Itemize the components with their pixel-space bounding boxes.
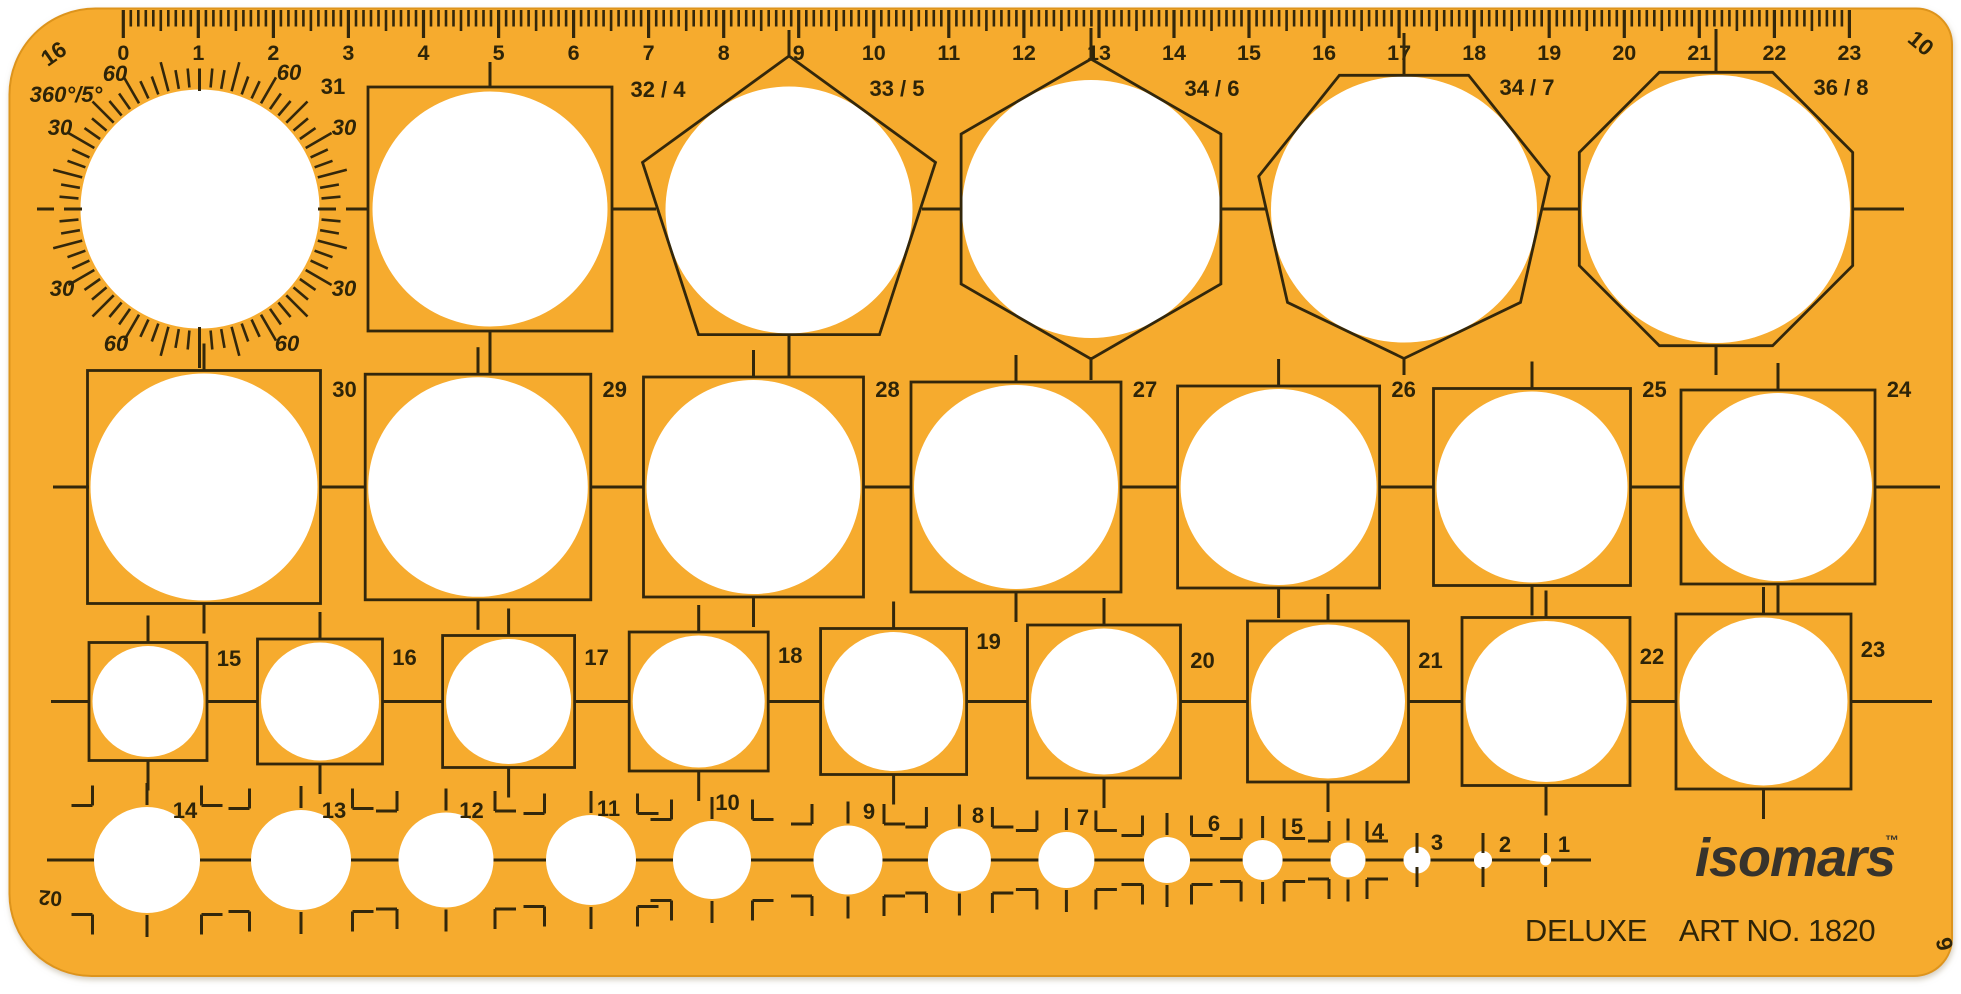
svg-text:60: 60 (275, 331, 300, 356)
svg-text:31: 31 (321, 74, 345, 99)
svg-text:1: 1 (192, 41, 204, 65)
svg-text:30: 30 (332, 276, 357, 301)
svg-text:30: 30 (332, 377, 356, 402)
svg-text:6: 6 (568, 41, 580, 65)
svg-text:20: 20 (1190, 648, 1214, 673)
svg-text:15: 15 (217, 646, 241, 671)
svg-text:8: 8 (718, 41, 730, 65)
svg-text:29: 29 (603, 377, 627, 402)
svg-text:23: 23 (1861, 637, 1885, 662)
svg-text:14: 14 (173, 798, 198, 823)
svg-text:5: 5 (1291, 814, 1303, 839)
svg-text:36 / 8: 36 / 8 (1813, 75, 1868, 100)
svg-text:28: 28 (875, 377, 899, 402)
svg-text:22: 22 (1640, 644, 1664, 669)
svg-text:16: 16 (392, 645, 416, 670)
svg-text:33 / 5: 33 / 5 (869, 76, 924, 101)
svg-text:20: 20 (1612, 41, 1636, 65)
svg-text:21: 21 (1418, 648, 1442, 673)
svg-text:4: 4 (418, 41, 430, 65)
svg-text:21: 21 (1687, 41, 1711, 65)
svg-text:3: 3 (342, 41, 354, 65)
svg-text:12: 12 (1012, 41, 1036, 65)
svg-text:30: 30 (50, 276, 75, 301)
svg-text:™: ™ (1885, 832, 1899, 848)
svg-text:5: 5 (493, 41, 505, 65)
svg-text:ART NO. 1820: ART NO. 1820 (1679, 913, 1875, 948)
svg-text:19: 19 (1537, 41, 1561, 65)
svg-text:60: 60 (104, 331, 129, 356)
svg-text:3: 3 (1431, 830, 1443, 855)
svg-text:18: 18 (778, 643, 802, 668)
svg-text:8: 8 (972, 803, 984, 828)
svg-text:6: 6 (1208, 811, 1220, 836)
svg-text:10: 10 (715, 790, 739, 815)
svg-text:15: 15 (1237, 41, 1261, 65)
svg-text:34 / 6: 34 / 6 (1184, 76, 1239, 101)
svg-text:12: 12 (459, 798, 483, 823)
svg-text:60: 60 (103, 61, 128, 86)
svg-text:11: 11 (937, 41, 960, 65)
svg-text:23: 23 (1837, 41, 1861, 65)
svg-text:19: 19 (976, 629, 1000, 654)
svg-text:22: 22 (1762, 41, 1786, 65)
svg-text:30: 30 (332, 115, 357, 140)
svg-text:isomars: isomars (1695, 828, 1895, 888)
svg-text:18: 18 (1462, 41, 1486, 65)
svg-text:2: 2 (1499, 832, 1511, 857)
svg-text:27: 27 (1133, 377, 1157, 402)
svg-text:9: 9 (863, 799, 875, 824)
svg-text:26: 26 (1391, 377, 1415, 402)
svg-text:1: 1 (1558, 832, 1570, 857)
svg-text:60: 60 (277, 60, 302, 85)
svg-text:17: 17 (584, 645, 608, 670)
svg-text:24: 24 (1887, 377, 1912, 402)
svg-text:10: 10 (862, 41, 886, 65)
svg-text:13: 13 (322, 798, 346, 823)
svg-text:11: 11 (597, 796, 620, 821)
svg-text:4: 4 (1372, 819, 1385, 844)
svg-text:360°/5°: 360°/5° (30, 82, 103, 107)
svg-text:30: 30 (48, 115, 73, 140)
svg-text:16: 16 (1312, 41, 1336, 65)
svg-text:17: 17 (1387, 41, 1411, 65)
svg-text:7: 7 (643, 41, 655, 65)
svg-text:34 / 7: 34 / 7 (1499, 75, 1554, 100)
svg-text:14: 14 (1162, 41, 1186, 65)
svg-text:7: 7 (1077, 805, 1089, 830)
svg-text:25: 25 (1642, 377, 1666, 402)
svg-text:DELUXE: DELUXE (1525, 913, 1647, 948)
svg-text:02: 02 (38, 885, 63, 910)
svg-text:32 / 4: 32 / 4 (630, 77, 686, 102)
